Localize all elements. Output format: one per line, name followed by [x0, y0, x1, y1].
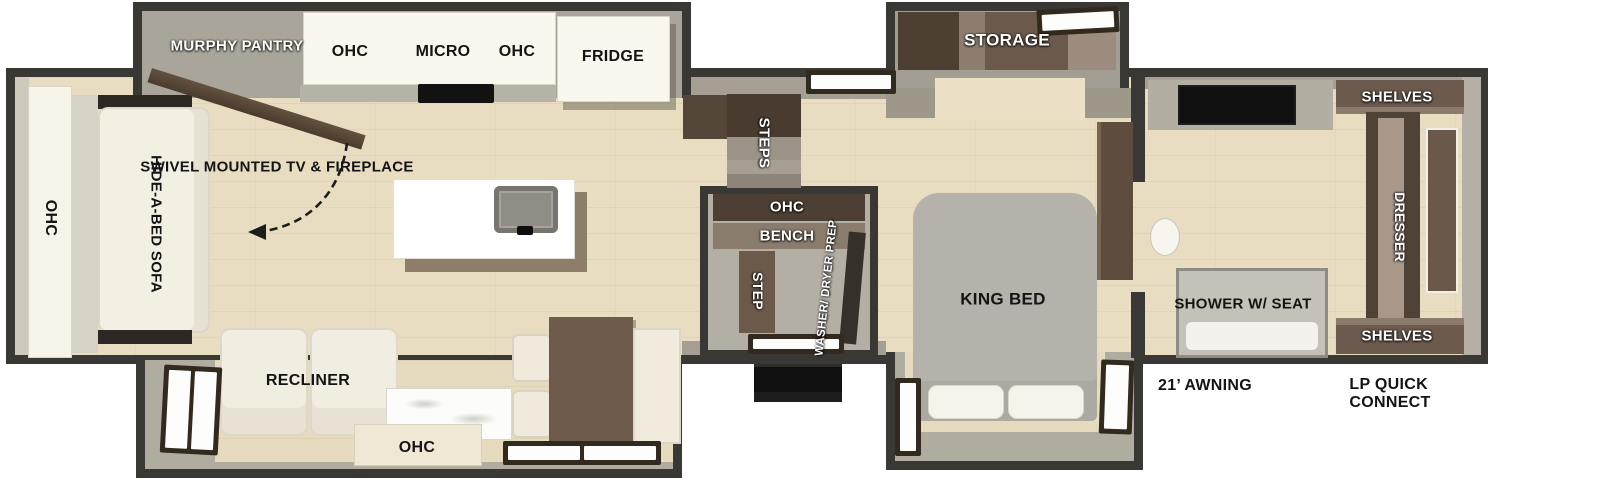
wall-reveal-left — [15, 77, 29, 355]
label-kitchen-micro: MICRO — [416, 43, 471, 61]
king-window-left — [895, 378, 921, 456]
king-window-right — [1099, 359, 1135, 434]
label-shower: SHOWER W/ SEAT — [1174, 297, 1311, 314]
island-faucet — [517, 226, 533, 235]
shower-pan — [1186, 322, 1318, 350]
rear-ohc-cabinet-side — [72, 95, 98, 353]
label-kitchen-ohc-right: OHC — [499, 43, 535, 61]
dining-table — [549, 317, 633, 444]
label-steps: STEPS — [755, 118, 772, 169]
label-kitchen-ohc-left: OHC — [332, 43, 368, 61]
sofa-end-table-bottom — [98, 330, 192, 344]
living-window-left — [160, 365, 223, 456]
label-shelves-top: SHELVES — [1361, 90, 1432, 107]
label-dresser: DRESSER — [1391, 192, 1407, 262]
counter-left-of-stairs — [683, 95, 727, 139]
label-recliner: RECLINER — [266, 372, 350, 390]
label-mid-ohc: OHC — [770, 200, 804, 217]
label-mid-bench: BENCH — [760, 229, 815, 246]
king-bed-pillow-right — [1008, 385, 1084, 419]
bed-foot-platform — [935, 78, 1085, 120]
label-living-ohc: OHC — [399, 439, 435, 457]
toilet — [1150, 218, 1180, 256]
living-window-bottom — [503, 441, 661, 465]
entry-door-threshold — [748, 334, 844, 354]
king-bed-pillow-left — [928, 385, 1004, 419]
entry-step-outside — [754, 364, 842, 402]
dining-chair-2 — [512, 390, 552, 438]
label-shelves-bottom: SHELVES — [1361, 329, 1432, 346]
bath-vanity-sink — [1178, 85, 1296, 125]
kitchen-cooktop — [418, 84, 494, 103]
front-mirror-panel — [1426, 128, 1458, 293]
label-mid-step: STEP — [749, 272, 765, 310]
label-murphy-pantry: MURPHY PANTRY — [171, 39, 304, 56]
wall-reveal-right — [1462, 77, 1481, 355]
label-king-bed: KING BED — [960, 289, 1046, 308]
galley-window-top — [806, 70, 896, 94]
wall-divider-bath-upper — [1131, 68, 1145, 182]
dining-chair-1 — [512, 334, 552, 382]
label-storage: STORAGE — [964, 30, 1050, 49]
label-lp-quick-connect: LP QUICK CONNECT — [1349, 376, 1430, 412]
label-rear-ohc: OHC — [41, 200, 59, 236]
wall-divider-bath-lower — [1131, 292, 1145, 358]
label-awning: 21’ AWNING — [1158, 377, 1252, 395]
rv-floorplan-diagram: OHC HIDE-A-BED SOFA MURPHY PANTRY SWIVEL… — [0, 0, 1600, 483]
label-swivel-tv: SWIVEL MOUNTED TV & FIREPLACE — [140, 160, 413, 177]
bedroom-wardrobe — [1097, 122, 1133, 280]
dining-bench — [633, 328, 681, 444]
label-fridge: FRIDGE — [582, 48, 644, 66]
